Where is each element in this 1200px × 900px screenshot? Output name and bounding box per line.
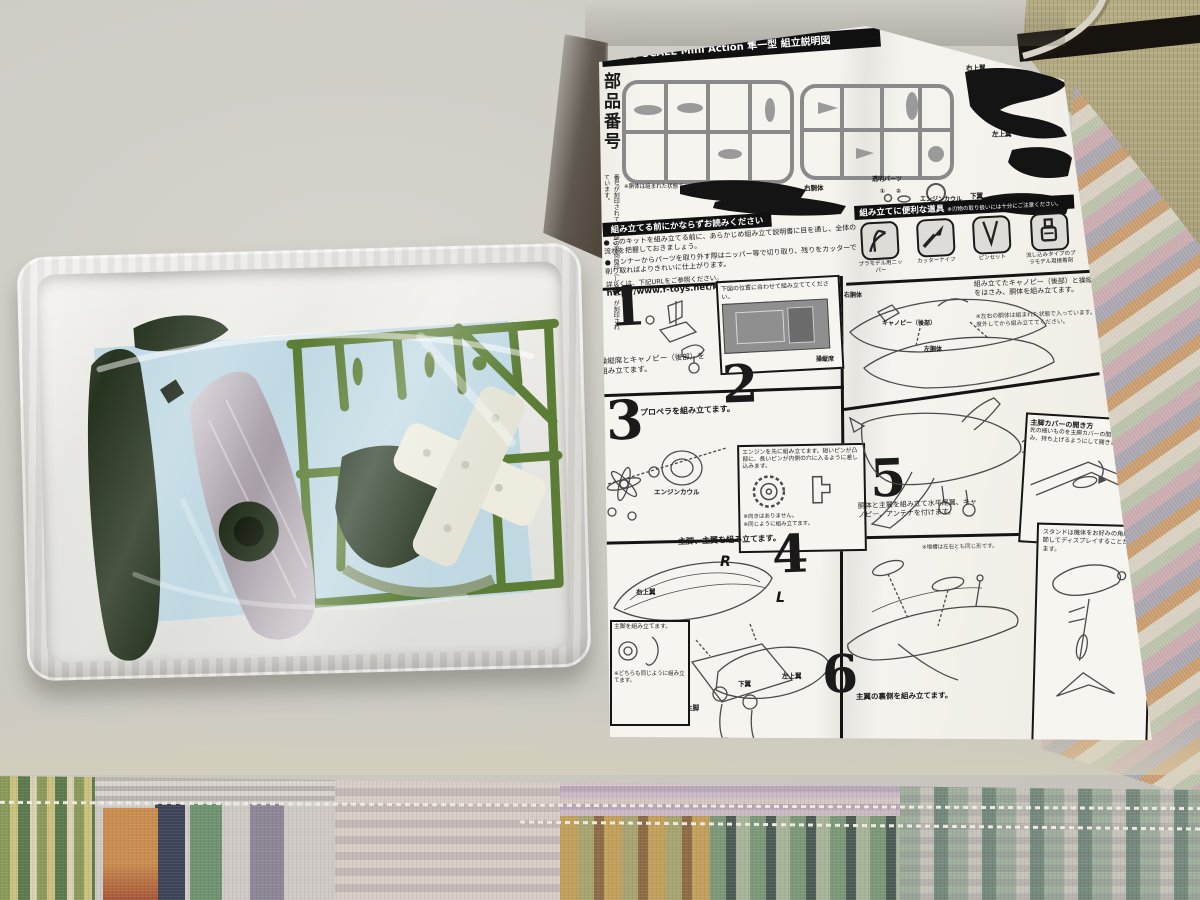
label-cockpit: 操縦席 xyxy=(816,354,834,363)
tweezers-icon xyxy=(971,215,1011,255)
quilt-fabric xyxy=(0,768,1200,900)
cutaway-detail xyxy=(787,306,815,343)
tool-label-tweezers: ピンセット xyxy=(969,254,1016,263)
tool-label-nippers: プラモデル用ニッパー xyxy=(857,259,905,275)
label-right-upper-wing: 右上翼 xyxy=(636,586,656,596)
nippers-icon xyxy=(859,221,899,261)
plastic-wrap-sheen xyxy=(37,261,571,663)
label-engine-cowl: エンジンカウル xyxy=(654,486,700,496)
label-clear-parts: 透明パーツ xyxy=(872,174,902,183)
label-right-upper-wing: 右上翼 xyxy=(966,62,986,72)
mark-l: L xyxy=(776,590,785,606)
label-left-fuselage: 左胴体 xyxy=(770,196,790,206)
label-right-fuselage: 右胴体 xyxy=(844,290,862,299)
mark-r: R xyxy=(720,554,731,570)
gear-inset-note: ※どちらも同じように組み立てます。 xyxy=(614,671,686,685)
stand-drawing xyxy=(1038,554,1136,706)
parts-tray xyxy=(17,243,592,682)
parts-silhouettes xyxy=(680,68,1072,216)
label-clear-part-1: ① xyxy=(880,188,885,195)
label-left-upper-wing: 左上翼 xyxy=(992,128,1012,138)
sprue-note: ※胴体は組まれた状態で入っています。 xyxy=(624,182,721,190)
tools-title: 組み立てに便利な道具 xyxy=(859,204,944,218)
engine-inset-drawing xyxy=(743,470,854,512)
photo-scene: 1/100 SCALE Mini Action 隼一型 組立説明図 部品番号 番… xyxy=(0,0,1200,900)
step3-diagram xyxy=(602,422,734,534)
gear-inset-text: 主脚を組み立てます。 xyxy=(614,624,686,631)
label-canopy-rear: キャノピー（後部） xyxy=(882,318,936,327)
cement-bottle-icon xyxy=(1030,212,1070,252)
step-number: 6 xyxy=(822,652,859,699)
label-lower-wing: 下翼 xyxy=(738,678,751,688)
label-left-fuselage: 左胴体 xyxy=(924,344,942,353)
tray-well xyxy=(37,261,571,663)
tools-caution: ※刃物の取り扱いには十分にご注意ください。 xyxy=(947,201,1062,213)
fabric-texture xyxy=(0,768,1200,900)
cockpit-cutaway-drawing xyxy=(722,298,830,353)
label-right-fuselage: 右胴体 xyxy=(804,182,824,192)
tool-label-knife: カッターナイフ xyxy=(913,257,960,266)
step4-gear-box: 主脚を組み立てます。 ※どちらも同じように組み立てます。 xyxy=(610,620,690,726)
gear-inset-drawing xyxy=(614,631,678,671)
sprue-part-shapes xyxy=(634,92,944,162)
label-clear-part-2: ② xyxy=(896,188,901,195)
tools-block: 組み立てに便利な道具 ※刃物の取り扱いには十分にご注意ください。 プラモデル用ニ… xyxy=(854,194,1077,275)
cutter-knife-icon xyxy=(915,218,955,258)
cutaway-detail xyxy=(735,309,785,343)
instruction-sheet: 1/100 SCALE Mini Action 隼一型 組立説明図 部品番号 番… xyxy=(594,24,1152,746)
tool-label-cement: 流し込みタイプのプラモデル用接着剤 xyxy=(1025,250,1078,266)
sheet-shadow xyxy=(536,34,608,260)
label-left-upper-wing: 左上翼 xyxy=(782,670,802,680)
